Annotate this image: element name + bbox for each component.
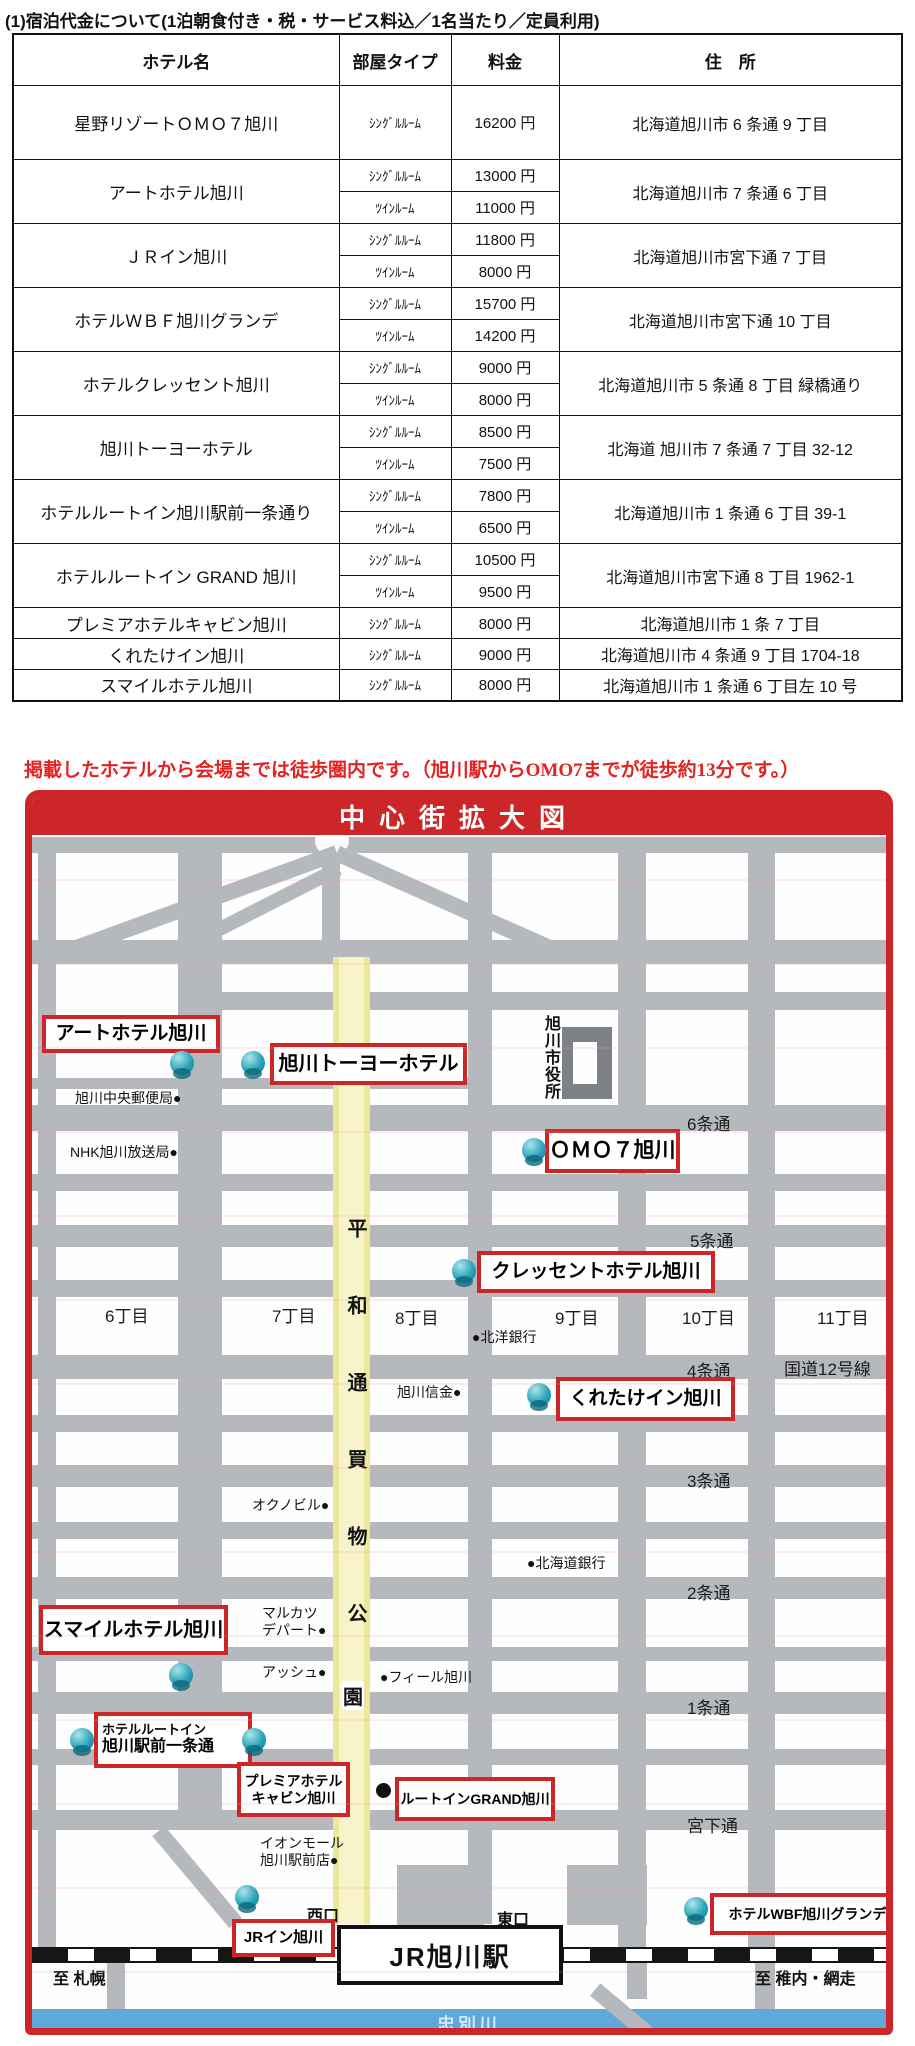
marker-jr-inn-icon [235, 1885, 259, 1909]
table-row: ＪＲイン旭川 ｼﾝｸﾞﾙﾙｰﾑ 11800 円 北海道旭川市宮下通 7 丁目 [13, 224, 902, 256]
room-type: ﾂｲﾝﾙｰﾑ [339, 576, 451, 608]
table-row: ホテルクレッセント旭川 ｼﾝｸﾞﾙﾙｰﾑ 9000 円 北海道旭川市 5 条通 … [13, 352, 902, 384]
room-price: 9000 円 [451, 639, 559, 670]
city-hall-label: 旭川市役所 [538, 1015, 562, 1100]
map-label-omo7: ＯＭＯ７旭川 [545, 1129, 680, 1173]
poi-asahikawa-shinkin: 旭川信金● [397, 1384, 461, 1401]
room-type: ﾂｲﾝﾙｰﾑ [339, 512, 451, 544]
room-price: 7800 円 [451, 480, 559, 512]
block-label-9chome: 9丁目 [555, 1304, 598, 1329]
map-label-kuretake-text: くれたけイン旭川 [569, 1388, 721, 1410]
street-7jo [217, 992, 886, 1010]
hotel-name: 旭川トーヨーホテル [13, 416, 339, 480]
hotel-name: プレミアホテルキャビン旭川 [13, 608, 339, 639]
hotel-address: 北海道旭川市 6 条通 9 丁目 [559, 86, 902, 160]
marker-route-inn-west-icon [70, 1728, 94, 1752]
table-row: スマイルホテル旭川 ｼﾝｸﾞﾙﾙｰﾑ 8000 円 北海道旭川市 1 条通 6 … [13, 670, 902, 701]
hotel-address: 北海道旭川市 4 条通 9 丁目 1704-18 [559, 639, 902, 670]
map-label-smile-hotel: スマイルホテル旭川 [39, 1605, 228, 1655]
room-price: 16200 円 [451, 86, 559, 160]
map-label-route-inn-ekimae: ホテルルートイン 旭川駅前一条通 [94, 1712, 252, 1768]
poi-aeon-line2: 旭川駅前店● [260, 1852, 338, 1868]
col-header-room: 部屋タイプ [339, 34, 451, 86]
map-label-omo7-text: ＯＭＯ７旭川 [550, 1139, 676, 1163]
station-east-block [567, 1865, 647, 1925]
marker-kuretake-icon [527, 1383, 551, 1407]
block-label-7chome: 7丁目 [272, 1302, 315, 1327]
room-price: 8000 円 [451, 256, 559, 288]
map-label-grand-text: ルートインGRAND旭川 [400, 1791, 549, 1807]
map-label-smile-text: スマイルホテル旭川 [44, 1619, 223, 1642]
table-row: アートホテル旭川 ｼﾝｸﾞﾙﾙｰﾑ 13000 円 北海道旭川市 7 条通 6 … [13, 160, 902, 192]
room-type: ｼﾝｸﾞﾙﾙｰﾑ [339, 670, 451, 701]
street-label-route12: 国道12号線 [784, 1355, 871, 1380]
marker-art-hotel-icon [170, 1051, 194, 1075]
col-header-hotel: ホテル名 [13, 34, 339, 86]
station-plaza-block [397, 1865, 484, 1925]
room-price: 14200 円 [451, 320, 559, 352]
hotel-name: ホテルＷＢＦ旭川グランデ [13, 288, 339, 352]
room-type: ｼﾝｸﾞﾙﾙｰﾑ [339, 86, 451, 160]
hotel-address: 北海道旭川市 7 条通 6 丁目 [559, 160, 902, 224]
room-type: ｼﾝｸﾞﾙﾙｰﾑ [339, 352, 451, 384]
downtown-map: 平和通買物公 園 旭川市役所 6条通 5条通 4条通 国道12号線 3条通 2条… [25, 790, 893, 2035]
station-name: JR旭川駅 [389, 1937, 510, 1974]
street-label-miyashita: 宮下通 [687, 1812, 738, 1837]
hotel-address: 北海道旭川市 1 条通 6 丁目 39-1 [559, 480, 902, 544]
map-label-premier-line1: プレミアホテル [245, 1773, 343, 1789]
poi-feeeal-asahikawa: ●フィール旭川 [380, 1669, 472, 1686]
jr-asahikawa-station: JR旭川駅 [337, 1925, 563, 1985]
room-type: ﾂｲﾝﾙｰﾑ [339, 256, 451, 288]
poi-aeon-mall: イオンモール 旭川駅前店● [260, 1835, 344, 1869]
map-title-band: 中心街拡大図 [32, 797, 886, 835]
room-type: ｼﾝｸﾞﾙﾙｰﾑ [339, 639, 451, 670]
room-price: 8000 円 [451, 608, 559, 639]
room-price: 13000 円 [451, 160, 559, 192]
street-label-5jo: 5条通 [690, 1227, 733, 1252]
block-label-6chome: 6丁目 [105, 1302, 148, 1327]
block-label-10chome: 10丁目 [682, 1304, 735, 1329]
map-title: 中心街拡大図 [339, 798, 579, 835]
table-row: 旭川トーヨーホテル ｼﾝｸﾞﾙﾙｰﾑ 8500 円 北海道 旭川市 7 条通 7… [13, 416, 902, 448]
map-label-route-inn-line1: ホテルルートイン [102, 1723, 206, 1738]
table-row: くれたけイン旭川 ｼﾝｸﾞﾙﾙｰﾑ 9000 円 北海道旭川市 4 条通 9 丁… [13, 639, 902, 670]
table-row: ホテルＷＢＦ旭川グランデ ｼﾝｸﾞﾙﾙｰﾑ 15700 円 北海道旭川市宮下通 … [13, 288, 902, 320]
map-label-premier-line2: キャビン旭川 [252, 1790, 336, 1806]
hotel-address: 北海道旭川市宮下通 7 丁目 [559, 224, 902, 288]
room-price: 8500 円 [451, 416, 559, 448]
map-label-jr-inn: JRイン旭川 [232, 1919, 335, 1957]
street-label-6jo: 6条通 [687, 1110, 730, 1135]
hotel-price-table: ホテル名 部屋タイプ 料金 住 所 星野リゾートＯＭＯ７旭川 ｼﾝｸﾞﾙﾙｰﾑ … [12, 33, 903, 702]
room-type: ﾂｲﾝﾙｰﾑ [339, 448, 451, 480]
hotel-name: 星野リゾートＯＭＯ７旭川 [13, 86, 339, 160]
poi-nhk-asahikawa: NHK旭川放送局● [70, 1144, 178, 1161]
room-type: ｼﾝｸﾞﾙﾙｰﾑ [339, 544, 451, 576]
hotel-address: 北海道旭川市宮下通 10 丁目 [559, 288, 902, 352]
marker-smile-icon [169, 1663, 193, 1687]
room-price: 8000 円 [451, 384, 559, 416]
hotel-name: ホテルルートイン GRAND 旭川 [13, 544, 339, 608]
map-label-wbf-grande: ホテルWBF旭川グランデ [710, 1893, 893, 1935]
table-row: ホテルルートイン旭川駅前一条通り ｼﾝｸﾞﾙﾙｰﾑ 7800 円 北海道旭川市 … [13, 480, 902, 512]
street-diagonal-station-west [152, 1826, 241, 1928]
table-row: ホテルルートイン GRAND 旭川 ｼﾝｸﾞﾙﾙｰﾑ 10500 円 北海道旭川… [13, 544, 902, 576]
poi-okuno-building: オクノビル● [252, 1497, 329, 1514]
map-label-crescent-hotel: クレッセントホテル旭川 [477, 1251, 715, 1293]
room-price: 15700 円 [451, 288, 559, 320]
poi-marukatsu-line1: マルカツ [262, 1605, 318, 1621]
map-label-wbf-text: ホテルWBF旭川グランデ [729, 1906, 887, 1922]
poi-aeon-line1: イオンモール [260, 1835, 344, 1851]
hotel-name: くれたけイン旭川 [13, 639, 339, 670]
street-label-3jo: 3条通 [687, 1467, 730, 1492]
mall-name-vertical: 平和通買物公 [341, 1218, 370, 1680]
col-header-price: 料金 [451, 34, 559, 86]
marker-crescent-icon [452, 1259, 476, 1283]
poi-central-post-office: 旭川中央郵便局● [75, 1090, 181, 1107]
table-row: 星野リゾートＯＭＯ７旭川 ｼﾝｸﾞﾙﾙｰﾑ 16200 円 北海道旭川市 6 条… [13, 86, 902, 160]
hotel-name: ホテルルートイン旭川駅前一条通り [13, 480, 339, 544]
hotel-address: 北海道 旭川市 7 条通 7 丁目 32-12 [559, 416, 902, 480]
poi-marukatsu-depart: マルカツ デパート● [262, 1605, 326, 1639]
hotel-address: 北海道旭川市 5 条通 8 丁目 緑橋通り [559, 352, 902, 416]
poi-hokkaido-bank: ●北海道銀行 [527, 1555, 605, 1572]
room-price: 11800 円 [451, 224, 559, 256]
hotel-address: 北海道旭川市宮下通 8 丁目 1962-1 [559, 544, 902, 608]
marker-wbf-icon [684, 1897, 708, 1921]
marker-toyo-hotel-icon [241, 1051, 265, 1075]
map-label-crescent-text: クレッセントホテル旭川 [491, 1261, 700, 1283]
street-top [32, 837, 886, 853]
room-type: ﾂｲﾝﾙｰﾑ [339, 320, 451, 352]
room-type: ｼﾝｸﾞﾙﾙｰﾑ [339, 608, 451, 639]
street-stub-southeast [627, 1959, 647, 1999]
room-type: ﾂｲﾝﾙｰﾑ [339, 384, 451, 416]
hotel-name: ＪＲイン旭川 [13, 224, 339, 288]
map-label-premier-cabin: プレミアホテル キャビン旭川 [237, 1762, 350, 1817]
room-price: 9500 円 [451, 576, 559, 608]
street-label-2jo: 2条通 [687, 1579, 730, 1604]
block-label-8chome: 8丁目 [395, 1304, 438, 1329]
hotel-address: 北海道旭川市 1 条 7 丁目 [559, 608, 902, 639]
room-type: ｼﾝｸﾞﾙﾙｰﾑ [339, 416, 451, 448]
city-hall-courtyard [573, 1042, 597, 1084]
city-hall-building [562, 1027, 612, 1099]
direction-sapporo: 至 札幌 [53, 1965, 105, 1989]
map-label-toyo-hotel-text: 旭川トーヨーホテル [279, 1053, 459, 1076]
walking-distance-note: 掲載したホテルから会場までは徒歩圏内です。（旭川駅からOMO7までが徒歩約13分… [24, 755, 799, 782]
room-price: 9000 円 [451, 352, 559, 384]
document-page: (1)宿泊代金について(1泊朝食付き・税・サービス料込／1名当たり／定員利用) … [0, 0, 915, 2046]
hotel-address: 北海道旭川市 1 条通 6 丁目左 10 号 [559, 670, 902, 701]
room-price: 7500 円 [451, 448, 559, 480]
room-type: ﾂｲﾝﾙｰﾑ [339, 192, 451, 224]
poi-hokuyo-bank: ●北洋銀行 [472, 1329, 536, 1346]
map-canvas: 平和通買物公 園 旭川市役所 6条通 5条通 4条通 国道12号線 3条通 2条… [32, 797, 886, 2028]
map-label-route-inn-grand: ルートインGRAND旭川 [395, 1777, 555, 1821]
street-label-1jo: 1条通 [687, 1694, 730, 1719]
map-label-jr-inn-text: JRイン旭川 [244, 1929, 323, 1946]
page-title: (1)宿泊代金について(1泊朝食付き・税・サービス料込／1名当たり／定員利用) [5, 7, 600, 32]
table-header-row: ホテル名 部屋タイプ 料金 住 所 [13, 34, 902, 86]
mall-name-last-char: 園 [342, 1681, 364, 1710]
room-type: ｼﾝｸﾞﾙﾙｰﾑ [339, 160, 451, 192]
street-v-8-9chome [468, 853, 492, 1924]
poi-ash: アッシュ● [262, 1664, 326, 1681]
direction-wakkanai-abashiri: 至 稚内・網走 [755, 1965, 855, 1989]
street-stub-southwest [107, 1959, 125, 2009]
hotel-name: アートホテル旭川 [13, 160, 339, 224]
room-price: 6500 円 [451, 512, 559, 544]
table-row: プレミアホテルキャビン旭川 ｼﾝｸﾞﾙﾙｰﾑ 8000 円 北海道旭川市 1 条… [13, 608, 902, 639]
room-price: 10500 円 [451, 544, 559, 576]
room-price: 8000 円 [451, 670, 559, 701]
room-type: ｼﾝｸﾞﾙﾙｰﾑ [339, 224, 451, 256]
marker-grand-dot-icon [376, 1783, 391, 1798]
map-label-kuretake-inn: くれたけイン旭川 [556, 1377, 735, 1421]
hotel-name: ホテルクレッセント旭川 [13, 352, 339, 416]
map-label-art-hotel: アートホテル旭川 [42, 1015, 220, 1053]
map-label-art-hotel-text: アートホテル旭川 [56, 1023, 207, 1045]
marker-route-inn-east-icon [242, 1728, 266, 1752]
room-type: ｼﾝｸﾞﾙﾙｰﾑ [339, 480, 451, 512]
marker-omo7-icon [522, 1138, 546, 1162]
street-v-10-11chome [748, 853, 775, 1947]
room-price: 11000 円 [451, 192, 559, 224]
block-label-11chome: 11丁目 [817, 1304, 869, 1329]
poi-marukatsu-line2: デパート● [262, 1622, 326, 1638]
hotel-name: スマイルホテル旭川 [13, 670, 339, 701]
map-label-toyo-hotel: 旭川トーヨーホテル [270, 1043, 467, 1085]
room-type: ｼﾝｸﾞﾙﾙｰﾑ [339, 288, 451, 320]
river-name-label: 忠別川 [437, 2011, 500, 2035]
map-label-route-inn-line2: 旭川駅前一条通 [102, 1738, 214, 1756]
col-header-address: 住 所 [559, 34, 902, 86]
